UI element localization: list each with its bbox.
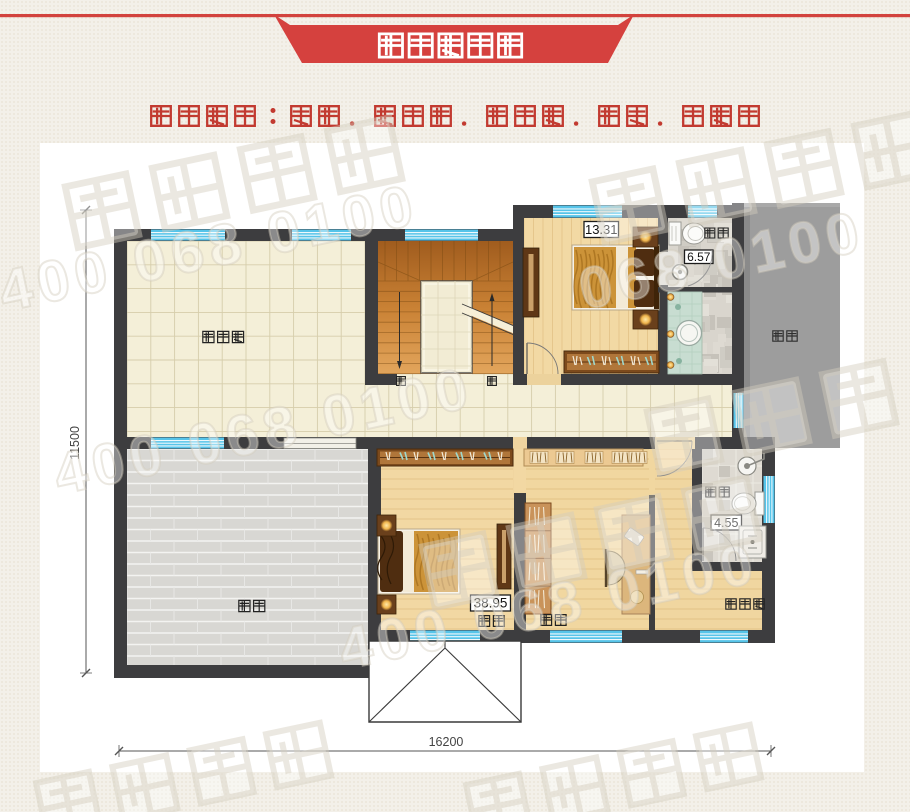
svg-text:16200: 16200 <box>429 735 464 749</box>
